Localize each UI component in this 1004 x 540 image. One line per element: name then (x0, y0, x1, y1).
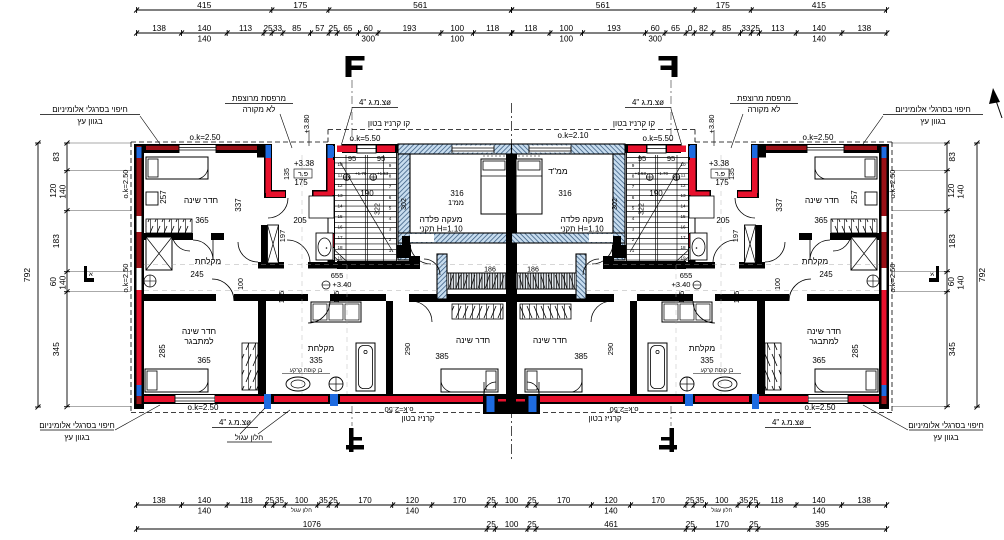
svg-text:מקלחת: מקלחת (195, 256, 222, 266)
svg-text:316: 316 (450, 189, 464, 198)
svg-text:322: 322 (375, 203, 382, 215)
svg-text:קו קרניז בטון: קו קרניז בטון (613, 119, 655, 128)
svg-text:140: 140 (406, 506, 420, 515)
svg-text:25: 25 (686, 496, 695, 505)
svg-text:135: 135 (284, 168, 291, 180)
svg-text:100: 100 (559, 34, 573, 43)
svg-text:o.k=2.10: o.k=2.10 (558, 131, 589, 140)
svg-text:183: 183 (947, 234, 957, 248)
svg-text:170: 170 (652, 496, 666, 505)
svg-text:120: 120 (406, 496, 420, 505)
svg-text:183: 183 (51, 234, 61, 248)
svg-text:118: 118 (770, 496, 783, 505)
svg-text:8: 8 (389, 174, 392, 179)
svg-text:120: 120 (48, 183, 58, 197)
svg-text:7: 7 (389, 184, 392, 189)
svg-text:35: 35 (275, 496, 284, 505)
svg-text:120: 120 (604, 496, 618, 505)
svg-text:185: 185 (677, 291, 686, 304)
svg-text:14: 14 (680, 204, 686, 209)
svg-text:100: 100 (505, 520, 519, 529)
svg-text:561: 561 (413, 0, 427, 10)
svg-text:7: 7 (632, 184, 635, 189)
svg-text:140: 140 (58, 275, 68, 289)
svg-text:322: 322 (639, 203, 646, 215)
svg-text:140: 140 (604, 506, 618, 515)
svg-text:3: 3 (632, 227, 635, 232)
svg-text:337: 337 (234, 198, 243, 212)
svg-text:65: 65 (671, 24, 681, 33)
svg-text:15: 15 (337, 214, 343, 219)
svg-text:3: 3 (389, 227, 392, 232)
svg-text:140: 140 (198, 24, 212, 33)
svg-text:4: 4 (389, 216, 392, 221)
svg-text:205: 205 (716, 216, 730, 225)
svg-text:135: 135 (729, 168, 736, 180)
svg-text:18: 18 (680, 245, 686, 250)
svg-text:חיפוי בסרגלי אלומיניום: חיפוי בסרגלי אלומיניום (895, 105, 971, 114)
svg-text:82: 82 (699, 24, 709, 33)
svg-text:185: 185 (732, 291, 741, 304)
svg-text:140: 140 (198, 496, 212, 505)
svg-text:0: 0 (688, 24, 693, 33)
svg-text:11: 11 (338, 172, 343, 177)
svg-text:ממ'1: ממ'1 (448, 198, 464, 207)
svg-text:25: 25 (265, 496, 274, 505)
svg-text:בגוון עץ: בגוון עץ (920, 117, 946, 126)
svg-text:6: 6 (632, 195, 635, 200)
svg-text:o.k=2.50: o.k=2.50 (385, 405, 414, 414)
svg-text:+3.38: +3.38 (294, 159, 315, 168)
svg-text:בגוון עץ: בגוון עץ (933, 433, 959, 442)
svg-text:חלון עגול: חלון עגול (235, 433, 263, 442)
svg-text:345: 345 (947, 342, 957, 356)
svg-text:95: 95 (667, 154, 675, 163)
svg-text:o.k=2.50: o.k=2.50 (610, 405, 639, 414)
svg-text:140: 140 (812, 24, 826, 33)
svg-text:100: 100 (450, 24, 464, 33)
svg-text:100: 100 (295, 496, 309, 505)
svg-text:95: 95 (638, 154, 646, 163)
svg-text:35: 35 (695, 496, 704, 505)
svg-text:257: 257 (850, 190, 859, 204)
svg-text:257: 257 (159, 190, 168, 204)
svg-text:113: 113 (239, 24, 252, 33)
svg-text:170: 170 (453, 496, 467, 505)
svg-text:o.k=2.50: o.k=2.50 (188, 403, 219, 412)
svg-text:25: 25 (329, 496, 338, 505)
svg-text:170: 170 (358, 496, 372, 505)
svg-text:792: 792 (977, 268, 987, 282)
svg-text:170: 170 (557, 496, 571, 505)
svg-text:o.k=2.50: o.k=2.50 (121, 264, 130, 293)
svg-text:415: 415 (197, 0, 211, 10)
svg-text:561: 561 (596, 0, 610, 10)
svg-text:345: 345 (51, 342, 61, 356)
svg-text:95: 95 (377, 154, 385, 163)
svg-text:365: 365 (814, 216, 828, 225)
svg-text:83: 83 (51, 152, 61, 162)
svg-text:95: 95 (348, 154, 356, 163)
svg-text:25: 25 (329, 24, 339, 33)
svg-text:25: 25 (527, 520, 537, 529)
svg-text:o.k=2.50: o.k=2.50 (888, 264, 897, 293)
svg-text:140: 140 (812, 496, 826, 505)
svg-text:25: 25 (749, 496, 758, 505)
svg-text:5: 5 (389, 205, 392, 210)
svg-text:1: 1 (389, 248, 392, 253)
svg-text:19: 19 (680, 256, 686, 261)
svg-text:138: 138 (152, 24, 166, 33)
svg-text:18: 18 (337, 245, 343, 250)
svg-text:33: 33 (741, 24, 751, 33)
svg-text:מקלחת: מקלחת (802, 256, 829, 266)
svg-text:140: 140 (198, 34, 212, 43)
svg-text:190: 190 (360, 189, 374, 198)
svg-text:100: 100 (715, 496, 729, 505)
svg-text:140: 140 (956, 275, 966, 289)
svg-text:190: 190 (649, 189, 663, 198)
svg-text:175: 175 (716, 0, 730, 10)
svg-text:o.k=5.50: o.k=5.50 (643, 134, 674, 143)
svg-text:לא מקורה: לא מקורה (748, 105, 781, 114)
svg-text:2: 2 (389, 237, 392, 242)
svg-text:60: 60 (651, 24, 661, 33)
svg-text:2: 2 (632, 237, 635, 242)
svg-text:11: 11 (681, 172, 686, 177)
svg-text:186: 186 (527, 267, 539, 274)
svg-text:+1.70: +1.70 (355, 171, 367, 176)
svg-text:חלון עגול: חלון עגול (291, 507, 312, 514)
svg-text:9: 9 (632, 163, 635, 168)
svg-text:170: 170 (715, 520, 729, 529)
svg-text:15: 15 (680, 214, 686, 219)
svg-text:335: 335 (700, 356, 714, 365)
svg-text:140: 140 (198, 506, 212, 515)
svg-text:385: 385 (435, 352, 449, 361)
svg-text:6: 6 (389, 195, 392, 200)
svg-text:+1.53: +1.53 (635, 171, 647, 176)
svg-text:205: 205 (293, 216, 307, 225)
svg-text:מקלחת: מקלחת (689, 343, 716, 353)
svg-text:1076: 1076 (303, 520, 322, 529)
svg-text:655: 655 (680, 271, 693, 280)
svg-text:85: 85 (292, 24, 302, 33)
svg-text:100: 100 (559, 24, 573, 33)
svg-text:100: 100 (238, 278, 245, 290)
svg-text:185: 185 (277, 291, 286, 304)
svg-text:35: 35 (319, 496, 328, 505)
svg-text:337: 337 (775, 198, 784, 212)
svg-text:415: 415 (812, 0, 826, 10)
svg-text:365: 365 (197, 356, 211, 365)
svg-text:60: 60 (364, 24, 374, 33)
svg-text:792: 792 (22, 268, 32, 282)
svg-text:חדר שינה: חדר שינה (533, 335, 567, 345)
svg-text:14: 14 (337, 204, 343, 209)
svg-text:+3.38: +3.38 (709, 159, 730, 168)
svg-text:חיפוי בסרגלי אלומיניום: חיפוי בסרגלי אלומיניום (39, 421, 115, 430)
svg-text:16: 16 (680, 224, 686, 229)
svg-text:60: 60 (946, 277, 956, 287)
svg-text:13: 13 (680, 193, 686, 198)
svg-text:197: 197 (731, 230, 740, 243)
svg-text:מקלחת: מקלחת (308, 343, 335, 353)
svg-text:+3.80: +3.80 (302, 115, 311, 134)
svg-text:140: 140 (812, 506, 826, 515)
svg-text:חיפוי בסרגלי אלומיניום: חיפוי בסרגלי אלומיניום (908, 421, 984, 430)
svg-text:302: 302 (401, 198, 408, 210)
svg-text:655: 655 (331, 271, 344, 280)
svg-text:16: 16 (337, 224, 343, 229)
svg-text:חדר שינה: חדר שינה (805, 195, 839, 205)
svg-text:למתבגר: למתבגר (184, 336, 214, 346)
svg-text:285: 285 (158, 344, 167, 358)
svg-text:302: 302 (612, 198, 619, 210)
svg-text:193: 193 (607, 24, 621, 33)
svg-text:חלון עגול: חלון עגול (711, 507, 732, 514)
svg-text:פ.ר: פ.ר (298, 171, 308, 178)
svg-text:+3.40: +3.40 (333, 280, 352, 289)
svg-text:1: 1 (632, 248, 635, 253)
svg-text:א: א (930, 272, 934, 278)
svg-text:8: 8 (632, 174, 635, 179)
svg-text:9: 9 (389, 163, 392, 168)
svg-text:חיפוי בסרגלי אלומיניום: חיפוי בסרגלי אלומיניום (52, 105, 128, 114)
svg-text:33: 33 (273, 24, 283, 33)
svg-text:185: 185 (332, 291, 341, 304)
svg-text:צ.מ.ג "4ø: צ.מ.ג "4ø (632, 98, 664, 107)
svg-text:o.k=2.50: o.k=2.50 (888, 170, 897, 199)
svg-text:בגוון עץ: בגוון עץ (64, 433, 90, 442)
svg-text:25: 25 (487, 520, 497, 529)
svg-text:חדר שינה: חדר שינה (184, 195, 218, 205)
svg-text:קרניז בטון: קרניז בטון (401, 414, 434, 423)
svg-text:תקני H=1.10: תקני H=1.10 (560, 225, 604, 234)
svg-text:מרפסת מרוצפת: מרפסת מרוצפת (737, 94, 791, 103)
svg-text:קו קרניז בטון: קו קרניז בטון (368, 119, 410, 128)
svg-text:לא מקורה: לא מקורה (243, 105, 276, 114)
svg-text:פ.ר: פ.ר (715, 171, 725, 178)
svg-text:335: 335 (309, 356, 323, 365)
svg-text:13: 13 (337, 193, 343, 198)
svg-text:o.k=2.50: o.k=2.50 (190, 133, 221, 142)
svg-text:5: 5 (632, 205, 635, 210)
svg-text:o.k=2.50: o.k=2.50 (121, 170, 130, 199)
svg-text:חדר שינה: חדר שינה (456, 335, 490, 345)
svg-text:461: 461 (604, 520, 618, 529)
svg-text:65: 65 (343, 24, 353, 33)
svg-text:138: 138 (857, 496, 871, 505)
svg-text:118: 118 (240, 496, 253, 505)
svg-text:תקני H=1.10: תקני H=1.10 (419, 225, 463, 234)
svg-text:100: 100 (505, 496, 519, 505)
svg-text:מרפסת מרוצפת: מרפסת מרוצפת (232, 94, 286, 103)
svg-text:בן קוסת קרקע: בן קוסת קרקע (701, 368, 734, 374)
svg-text:140: 140 (812, 34, 826, 43)
svg-text:60: 60 (48, 277, 58, 287)
svg-text:395: 395 (815, 520, 829, 529)
svg-text:10: 10 (680, 162, 686, 167)
svg-text:צ.מ.ג "4ø: צ.מ.ג "4ø (359, 98, 391, 107)
svg-text:385: 385 (574, 352, 588, 361)
svg-text:25: 25 (686, 520, 696, 529)
svg-text:o.k=2.50: o.k=2.50 (803, 133, 834, 142)
svg-text:19: 19 (337, 256, 343, 261)
svg-text:בן קוסת קרקע: בן קוסת קרקע (290, 368, 323, 374)
svg-text:+1.53: +1.53 (377, 171, 389, 176)
svg-text:א: א (89, 272, 93, 278)
svg-text:365: 365 (812, 356, 826, 365)
svg-text:140: 140 (58, 184, 68, 198)
svg-text:100: 100 (450, 34, 464, 43)
svg-text:מעקה פלדה: מעקה פלדה (561, 214, 604, 224)
svg-text:בגוון עץ: בגוון עץ (77, 117, 103, 126)
svg-text:35: 35 (739, 496, 748, 505)
svg-text:100: 100 (775, 278, 782, 290)
svg-text:25: 25 (264, 24, 274, 33)
svg-text:245: 245 (190, 270, 204, 279)
svg-text:12: 12 (680, 183, 686, 188)
svg-text:285: 285 (851, 344, 860, 358)
svg-text:118: 118 (486, 24, 499, 33)
svg-text:175: 175 (293, 0, 307, 10)
svg-text:120: 120 (946, 183, 956, 197)
svg-text:175: 175 (715, 178, 729, 187)
svg-text:קרניז בטון: קרניז בטון (588, 414, 621, 423)
svg-text:חדר שינה: חדר שינה (182, 326, 216, 336)
svg-text:316: 316 (558, 189, 572, 198)
svg-text:113: 113 (771, 24, 784, 33)
svg-text:+3.80: +3.80 (707, 115, 716, 134)
svg-text:193: 193 (403, 24, 417, 33)
svg-text:25: 25 (751, 24, 761, 33)
svg-text:290: 290 (606, 343, 615, 356)
svg-text:83: 83 (947, 152, 957, 162)
svg-text:+1.70: +1.70 (657, 171, 669, 176)
svg-text:ממ"ד: ממ"ד (548, 166, 568, 176)
svg-text:175: 175 (294, 178, 308, 187)
svg-text:צ.מ.ג "4ø: צ.מ.ג "4ø (772, 418, 804, 427)
svg-text:118: 118 (524, 24, 537, 33)
svg-text:4: 4 (632, 216, 635, 221)
svg-text:10: 10 (337, 162, 343, 167)
svg-text:12: 12 (337, 183, 343, 188)
svg-text:17: 17 (680, 235, 686, 240)
svg-text:300: 300 (648, 34, 662, 43)
svg-text:57: 57 (315, 24, 325, 33)
svg-text:25: 25 (487, 496, 496, 505)
svg-text:25: 25 (528, 496, 537, 505)
svg-text:138: 138 (152, 496, 166, 505)
svg-text:245: 245 (819, 270, 833, 279)
svg-text:138: 138 (858, 24, 872, 33)
svg-text:צ.מ.ג "4ø: צ.מ.ג "4ø (219, 418, 251, 427)
svg-text:מעקה פלדה: מעקה פלדה (420, 214, 463, 224)
svg-text:חדר שינה: חדר שינה (807, 326, 841, 336)
svg-text:300: 300 (361, 34, 375, 43)
svg-text:197: 197 (278, 230, 287, 243)
svg-text:o.k=5.50: o.k=5.50 (350, 134, 381, 143)
svg-text:17: 17 (337, 235, 343, 240)
svg-text:85: 85 (722, 24, 732, 33)
svg-text:o.k=2.50: o.k=2.50 (805, 403, 836, 412)
svg-text:186: 186 (484, 267, 496, 274)
svg-text:למתבגר: למתבגר (809, 336, 839, 346)
svg-text:140: 140 (956, 184, 966, 198)
svg-text:365: 365 (195, 216, 209, 225)
svg-text:290: 290 (403, 343, 412, 356)
svg-text:+3.40: +3.40 (672, 280, 691, 289)
svg-text:25: 25 (749, 520, 759, 529)
